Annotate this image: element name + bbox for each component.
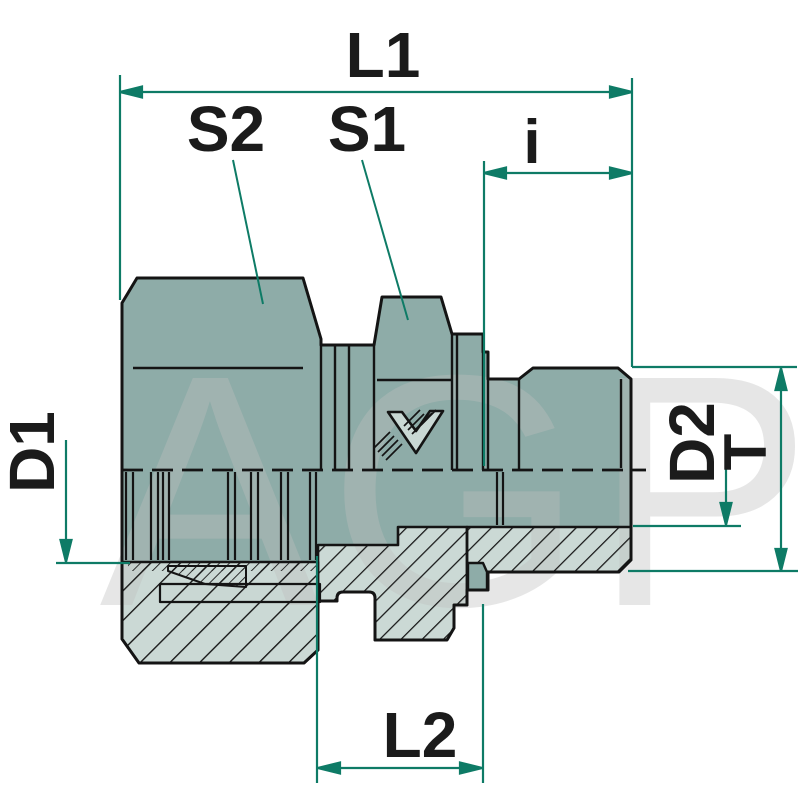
label-s2: S2 [187, 93, 265, 165]
arrow-right-icon [460, 763, 482, 774]
dimension-i [484, 168, 632, 179]
label-l1: L1 [346, 19, 421, 91]
label-s1: S1 [328, 93, 406, 165]
label-i: i [523, 108, 540, 177]
seal-step [468, 563, 487, 590]
label-l2: L2 [383, 699, 458, 771]
arrow-down-icon [61, 540, 72, 562]
label-d1: D1 [0, 411, 68, 493]
arrow-left-icon [120, 87, 142, 98]
arrow-right-icon [610, 87, 632, 98]
label-t: T [712, 434, 779, 471]
arrow-left-icon [484, 168, 506, 179]
arrow-left-icon [318, 763, 340, 774]
technical-drawing-canvas: AGP [0, 0, 800, 800]
arrow-right-icon [610, 168, 632, 179]
fitting-diagram-svg: AGP [0, 0, 800, 800]
